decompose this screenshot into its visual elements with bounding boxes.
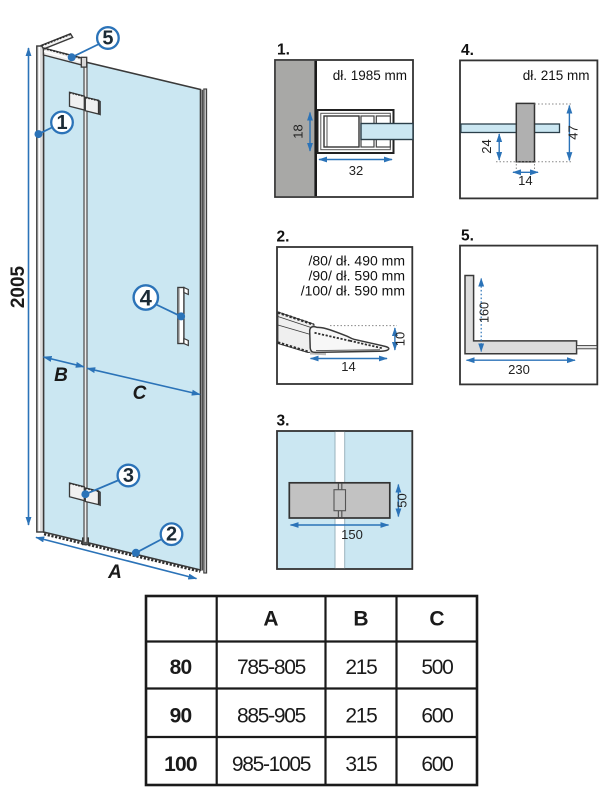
svg-text:2: 2 (166, 524, 177, 546)
svg-text:32: 32 (349, 163, 363, 178)
svg-text:150: 150 (341, 527, 363, 542)
svg-text:215: 215 (345, 705, 377, 728)
svg-text:4.: 4. (461, 42, 474, 59)
svg-text:4: 4 (140, 285, 153, 310)
svg-text:B: B (54, 365, 68, 386)
svg-text:1: 1 (56, 112, 67, 134)
svg-text:2.: 2. (277, 229, 290, 246)
svg-text:14: 14 (518, 173, 532, 188)
svg-text:315: 315 (345, 753, 377, 776)
svg-text:47: 47 (566, 125, 581, 139)
svg-text:B: B (353, 608, 368, 631)
svg-text:C: C (133, 383, 147, 404)
svg-text:A: A (107, 562, 122, 583)
svg-text:/100/ dł. 590 mm: /100/ dł. 590 mm (301, 283, 405, 299)
svg-text:3.: 3. (277, 413, 290, 430)
svg-text:785-805: 785-805 (237, 656, 306, 679)
svg-text:600: 600 (421, 705, 453, 728)
svg-text:2005: 2005 (8, 265, 29, 308)
svg-text:215: 215 (345, 656, 377, 679)
svg-text:5.: 5. (461, 227, 474, 244)
svg-text:/80/ dł. 490 mm: /80/ dł. 490 mm (309, 253, 406, 269)
svg-text:100: 100 (164, 753, 197, 776)
svg-text:5: 5 (102, 28, 113, 50)
svg-text:160: 160 (478, 302, 492, 323)
svg-text:14: 14 (341, 359, 355, 374)
svg-text:50: 50 (395, 493, 410, 507)
svg-text:985-1005: 985-1005 (232, 753, 311, 776)
svg-text:80: 80 (170, 656, 192, 679)
svg-text:1.: 1. (277, 42, 290, 59)
svg-text:dł. 1985 mm: dł. 1985 mm (333, 68, 407, 83)
svg-text:230: 230 (508, 362, 530, 377)
svg-text:885-905: 885-905 (237, 705, 306, 728)
svg-text:90: 90 (170, 705, 192, 728)
svg-text:dł. 215 mm: dł. 215 mm (523, 68, 590, 83)
svg-text:24: 24 (479, 139, 494, 153)
svg-text:3: 3 (123, 465, 134, 487)
svg-text:18: 18 (291, 124, 306, 138)
svg-text:10: 10 (393, 332, 408, 346)
svg-text:500: 500 (421, 656, 453, 679)
svg-text:/90/ dł. 590 mm: /90/ dł. 590 mm (309, 268, 406, 284)
svg-text:C: C (429, 608, 444, 631)
svg-text:A: A (263, 608, 278, 631)
svg-text:600: 600 (421, 753, 453, 776)
